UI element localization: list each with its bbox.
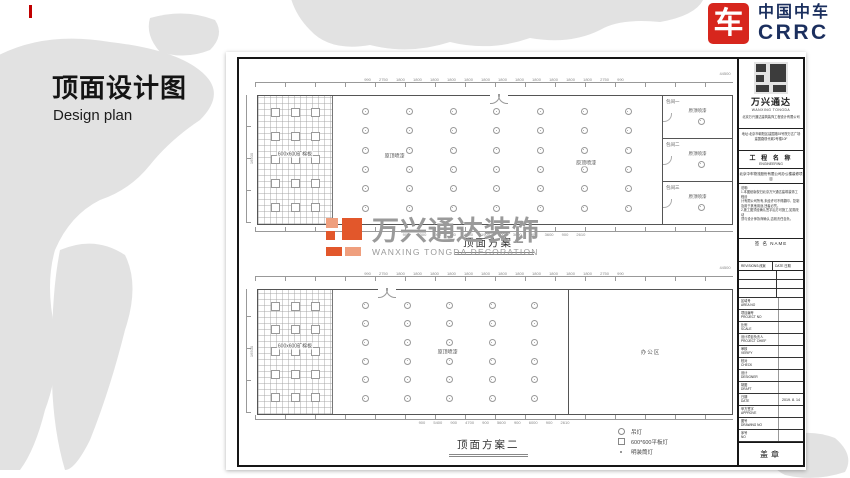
pendant-light-symbol bbox=[493, 147, 500, 154]
pendant-light-symbol bbox=[489, 302, 496, 309]
legend-item: 600*600平板灯 bbox=[617, 437, 727, 446]
pendant-light-symbol bbox=[698, 204, 705, 211]
pendant-light-symbol bbox=[489, 376, 496, 383]
pendant-light-symbol bbox=[493, 108, 500, 115]
titleblock-engineering-header: 工 程 名 称 ENGINEERING bbox=[739, 151, 803, 169]
revision-row bbox=[739, 280, 803, 289]
pendant-light-symbol bbox=[489, 395, 496, 402]
legend-label: 吊灯 bbox=[631, 428, 642, 436]
pendant-light-symbol bbox=[489, 320, 496, 327]
pendant-light-symbol bbox=[581, 147, 588, 154]
pendant-light-symbol bbox=[404, 320, 411, 327]
downlight-icon bbox=[620, 451, 622, 453]
titleblock-revisions-header: REVISIONS:改案DATE 日期 bbox=[739, 262, 803, 271]
pendant-light-symbol bbox=[404, 358, 411, 365]
pendant-light-symbol bbox=[537, 205, 544, 212]
title-block: 万兴通达 WANXING TONGDA 北京万兴通达建筑装饰工程设计有限公司 地… bbox=[737, 59, 803, 465]
plan1-grid-label: 600x600矿棉板 bbox=[277, 150, 313, 157]
pendant-light-symbol bbox=[531, 320, 538, 327]
titleblock-field: 比例SCALE bbox=[739, 322, 803, 334]
titleblock-field: 日期DATE 2019. 8. 14 bbox=[739, 394, 803, 406]
panel-light-symbol bbox=[291, 203, 300, 212]
plan2-office-zone: 办公区 bbox=[568, 290, 732, 414]
titleblock-signature: 签 名 NAME bbox=[739, 239, 803, 262]
titleblock-logo: 万兴通达 WANXING TONGDA 北京万兴通达建筑装饰工程设计有限公司 bbox=[739, 59, 803, 129]
plan1-panel-lights bbox=[265, 101, 325, 219]
panel-light-symbol bbox=[311, 393, 320, 402]
titleblock-company: 北京万兴通达建筑装饰工程设计有限公司 bbox=[739, 114, 803, 119]
pendant-light-symbol bbox=[493, 166, 500, 173]
plan2-open-label-1: 原顶喷漆 bbox=[437, 349, 459, 356]
pendant-light-symbol bbox=[450, 127, 457, 134]
pendant-light-symbol bbox=[362, 166, 369, 173]
pendant-light-symbol bbox=[625, 205, 632, 212]
titleblock-logo-cn: 万兴通达 bbox=[739, 95, 803, 108]
drawing-area: 990 2750 1800 1800 1800 1800 1800 1800 1… bbox=[239, 59, 739, 465]
room: 包间三 原顶喷漆 bbox=[663, 182, 732, 224]
pendant-light-symbol bbox=[406, 147, 413, 154]
titleblock-field: 制图DRAFT bbox=[739, 382, 803, 394]
pendant-light-symbol bbox=[362, 358, 369, 365]
sheet-frame: 990 2750 1800 1800 1800 1800 1800 1800 1… bbox=[237, 57, 805, 467]
plan-2: 600x600矿棉板 原顶喷漆 办公区 bbox=[257, 289, 733, 415]
revision-row bbox=[739, 289, 803, 298]
pendant-light-symbol bbox=[450, 108, 457, 115]
pendant-light-symbol bbox=[531, 376, 538, 383]
room: 包间一 原顶喷漆 bbox=[663, 96, 732, 139]
pendant-light-symbol bbox=[404, 395, 411, 402]
panel-light-symbol bbox=[291, 302, 300, 311]
room: 包间二 原顶喷漆 bbox=[663, 139, 732, 182]
pendant-light-symbol bbox=[698, 118, 705, 125]
plan2-total-dim: 44500 bbox=[713, 265, 737, 270]
pendant-light-symbol bbox=[406, 205, 413, 212]
pendant-light-symbol bbox=[362, 302, 369, 309]
titleblock-field: 审核VERIFY bbox=[739, 346, 803, 358]
titleblock-field: 校对CHECK bbox=[739, 358, 803, 370]
titleblock-logo-en: WANXING TONGDA bbox=[739, 108, 803, 112]
room-name: 包间三 bbox=[666, 185, 680, 191]
panel-icon bbox=[618, 438, 625, 445]
panel-light-symbol bbox=[271, 370, 280, 379]
crrc-emblem-icon: 车 bbox=[708, 3, 749, 44]
pendant-light-symbol bbox=[581, 127, 588, 134]
pendant-light-symbol bbox=[362, 376, 369, 383]
room-ceiling-label: 原顶喷漆 bbox=[689, 194, 707, 200]
pendant-light-symbol bbox=[489, 358, 496, 365]
pendant-light-symbol bbox=[406, 127, 413, 134]
panel-light-symbol bbox=[271, 393, 280, 402]
panel-light-symbol bbox=[291, 370, 300, 379]
plan1-double-door bbox=[490, 94, 508, 103]
pendant-light-symbol bbox=[446, 320, 453, 327]
pendant-light-symbol bbox=[362, 127, 369, 134]
pendant-light-symbol bbox=[493, 185, 500, 192]
titleblock-field: 设计DESIGNER bbox=[739, 370, 803, 382]
panel-light-symbol bbox=[311, 203, 320, 212]
pendant-light-symbol bbox=[537, 108, 544, 115]
panel-light-symbol bbox=[311, 325, 320, 334]
pendant-light-symbol bbox=[406, 166, 413, 173]
pendant-light-symbol bbox=[581, 166, 588, 173]
pendant-light-symbol bbox=[531, 395, 538, 402]
pendant-light-symbol bbox=[581, 108, 588, 115]
plan1-open-label-2: 原顶喷漆 bbox=[575, 159, 597, 166]
plan2-top-dimensions: 990 2750 1800 1800 1800 1800 1800 1800 1… bbox=[255, 271, 733, 281]
office-area-label: 办公区 bbox=[641, 348, 661, 356]
pendant-light-symbol bbox=[531, 339, 538, 346]
plan1-open-label-1: 原顶喷漆 bbox=[384, 153, 406, 160]
plan2-grid-label: 600x600矿棉板 bbox=[277, 342, 313, 349]
plan2-double-door bbox=[378, 288, 396, 297]
pendant-light-symbol bbox=[489, 339, 496, 346]
slide-corner-mark bbox=[29, 5, 32, 18]
plan2-grid-ceiling-zone: 600x600矿棉板 bbox=[258, 290, 333, 414]
panel-light-symbol bbox=[271, 203, 280, 212]
crrc-name-cn: 中国中车 bbox=[758, 4, 830, 22]
panel-light-symbol bbox=[291, 108, 300, 117]
titleblock-fields: 区域号AREA NO 项目编号PROJECT NO 比例SCALE 设计项目负责… bbox=[739, 298, 803, 442]
pendant-light-symbol bbox=[404, 302, 411, 309]
panel-light-symbol bbox=[271, 132, 280, 141]
pendant-light-symbol bbox=[446, 302, 453, 309]
pendant-light-symbol bbox=[406, 108, 413, 115]
watermark-text: 万兴通达装饰 bbox=[372, 218, 540, 245]
plan2-caption: 顶面方案二 bbox=[449, 437, 528, 457]
pendant-light-symbol bbox=[362, 320, 369, 327]
pendant-light-symbol bbox=[625, 147, 632, 154]
pendant-light-symbol bbox=[493, 127, 500, 134]
plan2-open-ceiling-zone: 原顶喷漆 bbox=[332, 290, 568, 414]
pendant-light-symbol bbox=[362, 395, 369, 402]
legend-item: 明装筒灯 bbox=[617, 447, 727, 456]
door-swing bbox=[663, 156, 672, 165]
door-swing bbox=[663, 113, 672, 122]
crrc-name-en: CRRC bbox=[758, 22, 830, 43]
pendant-light-symbol bbox=[698, 161, 705, 168]
watermark: 万兴通达装饰 WANXING TONGDA DECORATION bbox=[326, 218, 540, 257]
watermark-subtext: WANXING TONGDA DECORATION bbox=[372, 247, 540, 257]
legend: 吊灯 600*600平板灯 明装筒灯 bbox=[617, 427, 727, 456]
pendant-light-symbol bbox=[493, 205, 500, 212]
panel-light-symbol bbox=[311, 108, 320, 117]
plan1-top-dimensions: 990 2750 1800 1800 1800 1800 1800 1800 1… bbox=[255, 77, 733, 87]
pendant-light-symbol bbox=[581, 205, 588, 212]
plan1-rooms-zone: 包间一 原顶喷漆 包间二 原顶喷漆 包间三 原顶喷漆 bbox=[662, 96, 732, 224]
page-title: 顶面设计图 bbox=[52, 68, 187, 105]
titleblock-project-name: 北京中车物流股份有限公司办公楼装修项目 bbox=[739, 169, 803, 184]
titleblock-field: 项目编号PROJECT NO bbox=[739, 310, 803, 322]
panel-light-symbol bbox=[311, 132, 320, 141]
pendant-light-symbol bbox=[625, 166, 632, 173]
pendant-light-symbol bbox=[446, 358, 453, 365]
pendant-light-symbol bbox=[362, 185, 369, 192]
panel-light-symbol bbox=[311, 302, 320, 311]
revision-row bbox=[739, 271, 803, 280]
pendant-light-symbol bbox=[625, 108, 632, 115]
pendant-light-symbol bbox=[446, 395, 453, 402]
titleblock-seal-box: 盖章 bbox=[739, 442, 803, 465]
panel-light-symbol bbox=[271, 325, 280, 334]
pendant-light-symbol bbox=[537, 147, 544, 154]
titleblock-notes: 说明: 1.本图纸版权归北京万兴通达建筑装饰工程设 计有限公司所有,未经许可不得… bbox=[739, 184, 803, 239]
plan2-bottom-dimensions: 900 5400 900 4700 900 5600 900 6000 900 … bbox=[255, 415, 733, 425]
pendant-light-symbol bbox=[450, 147, 457, 154]
pendant-light-symbol bbox=[446, 339, 453, 346]
plan1-open-ceiling-zone: 原顶喷漆 原顶喷漆 bbox=[332, 96, 662, 224]
pendant-light-symbol bbox=[537, 166, 544, 173]
plan-1: 600x600矿棉板 原顶喷漆 原顶喷漆 包间一 原顶喷漆 包间二 原顶喷漆 bbox=[257, 95, 733, 225]
panel-light-symbol bbox=[311, 179, 320, 188]
plan1-pendant-lights bbox=[344, 102, 650, 218]
legend-item: 吊灯 bbox=[617, 427, 727, 436]
plan2-side-dimension: 16500 bbox=[246, 289, 251, 413]
pendant-light-symbol bbox=[581, 185, 588, 192]
panel-light-symbol bbox=[291, 132, 300, 141]
titleblock-field: 甲方签字APPROVE bbox=[739, 406, 803, 418]
room-name: 包间一 bbox=[666, 99, 680, 105]
panel-light-symbol bbox=[271, 108, 280, 117]
legend-label: 600*600平板灯 bbox=[631, 438, 668, 446]
panel-light-symbol bbox=[311, 370, 320, 379]
pendant-light-symbol bbox=[450, 185, 457, 192]
pendant-light-symbol bbox=[362, 339, 369, 346]
pendant-icon bbox=[618, 428, 625, 435]
pendant-light-symbol bbox=[362, 147, 369, 154]
plan2-panel-lights bbox=[265, 295, 325, 409]
watermark-logo-icon bbox=[326, 218, 366, 256]
panel-light-symbol bbox=[271, 179, 280, 188]
panel-light-symbol bbox=[291, 179, 300, 188]
titleblock-field: 设计项目负责人PROJECT CHIEF bbox=[739, 334, 803, 346]
pendant-light-symbol bbox=[625, 127, 632, 134]
panel-light-symbol bbox=[291, 393, 300, 402]
panel-light-symbol bbox=[291, 325, 300, 334]
titleblock-field: 区域号AREA NO bbox=[739, 298, 803, 310]
titleblock-field: 图号DRAWING NO bbox=[739, 418, 803, 430]
pendant-light-symbol bbox=[446, 376, 453, 383]
crrc-logo: 车 中国中车 CRRC bbox=[708, 3, 830, 44]
plan1-side-dimension: 16500 bbox=[246, 95, 251, 223]
pendant-light-symbol bbox=[625, 185, 632, 192]
pendant-light-symbol bbox=[450, 166, 457, 173]
pendant-light-symbol bbox=[537, 185, 544, 192]
panel-light-symbol bbox=[271, 302, 280, 311]
pendant-light-symbol bbox=[404, 339, 411, 346]
plan1-grid-ceiling-zone: 600x600矿棉板 bbox=[258, 96, 333, 224]
pendant-light-symbol bbox=[362, 108, 369, 115]
pendant-light-symbol bbox=[531, 302, 538, 309]
pendant-light-symbol bbox=[450, 205, 457, 212]
wanxing-tongda-logo-icon bbox=[754, 62, 788, 94]
room-name: 包间二 bbox=[666, 142, 680, 148]
door-swing bbox=[663, 199, 672, 208]
pendant-light-symbol bbox=[537, 127, 544, 134]
room-ceiling-label: 原顶喷漆 bbox=[689, 151, 707, 157]
page-subtitle: Design plan bbox=[53, 107, 132, 124]
plan1-total-dim: 44500 bbox=[713, 71, 737, 76]
titleblock-field: 序号NO bbox=[739, 430, 803, 442]
titleblock-address: 地址:北京市朝阳区建国路93号院万达广场 建国路现代城2号楼10F bbox=[739, 129, 803, 151]
drawing-sheet: 990 2750 1800 1800 1800 1800 1800 1800 1… bbox=[226, 52, 806, 470]
presentation-slide: 顶面设计图 Design plan 车 中国中车 CRRC 990 2750 1… bbox=[0, 0, 850, 478]
room-ceiling-label: 原顶喷漆 bbox=[689, 108, 707, 114]
legend-label: 明装筒灯 bbox=[631, 448, 653, 456]
pendant-light-symbol bbox=[362, 205, 369, 212]
pendant-light-symbol bbox=[406, 185, 413, 192]
pendant-light-symbol bbox=[531, 358, 538, 365]
pendant-light-symbol bbox=[404, 376, 411, 383]
